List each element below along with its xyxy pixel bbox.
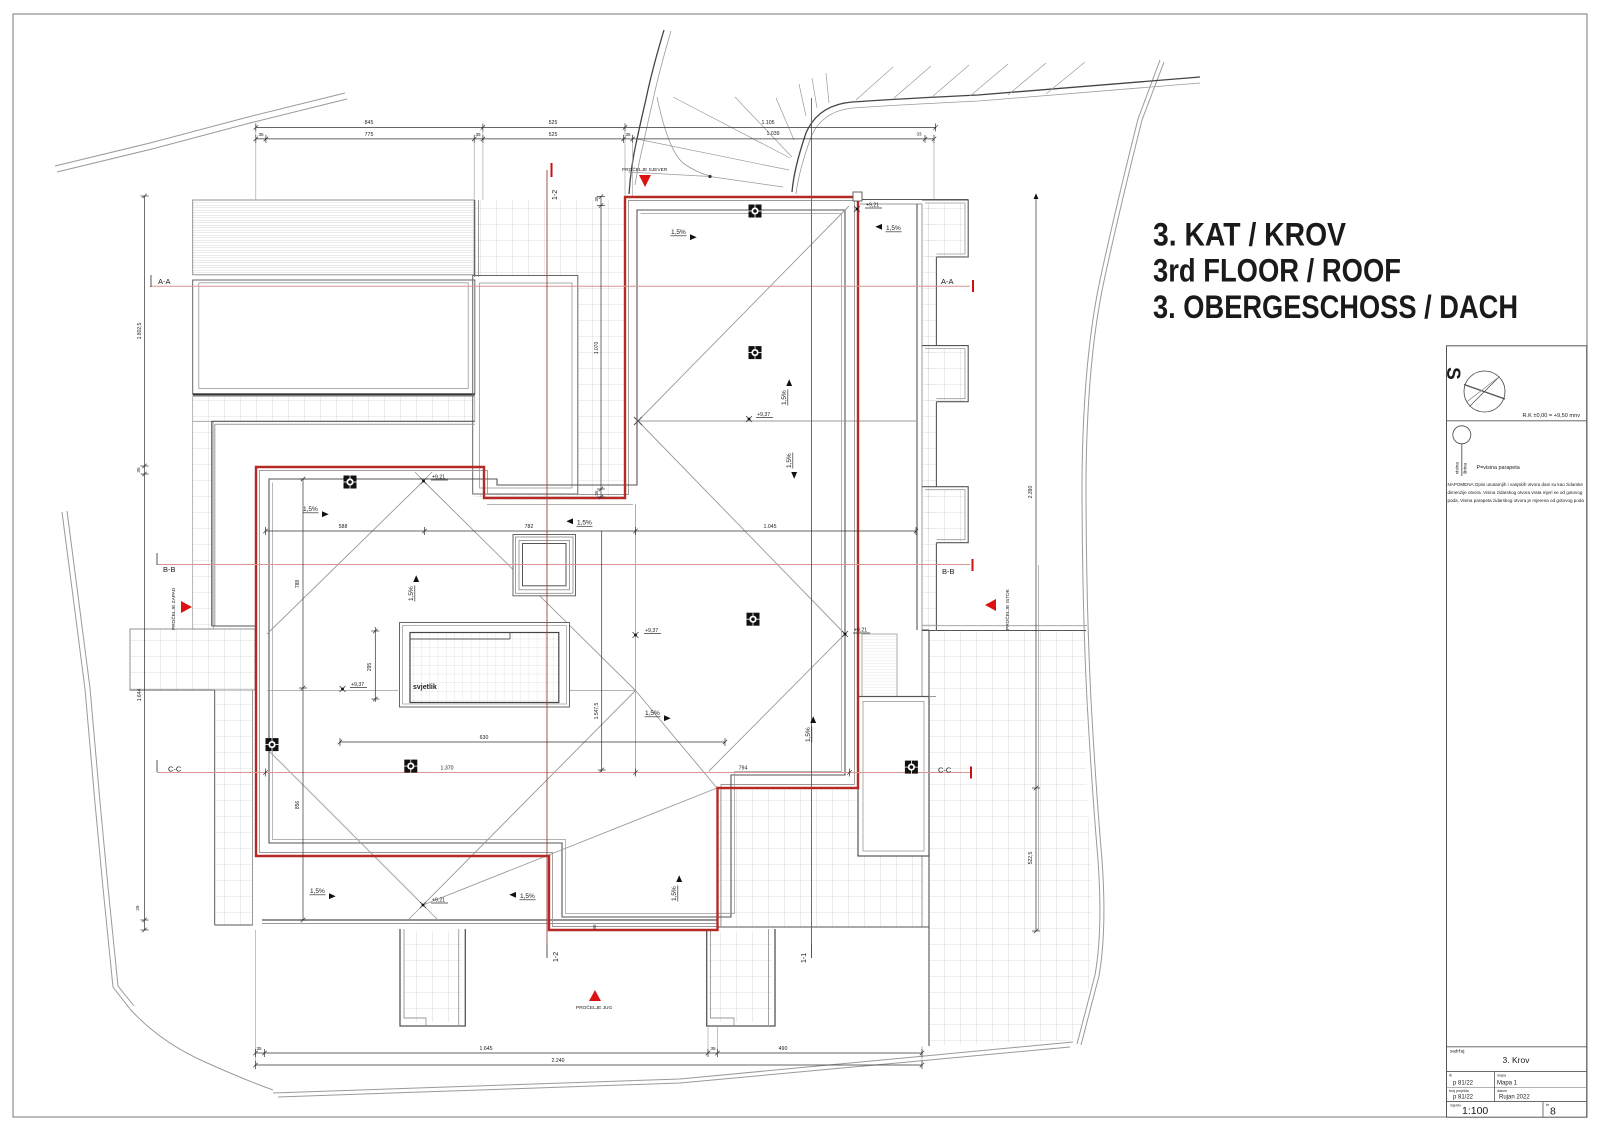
svg-text:782: 782 bbox=[525, 524, 534, 530]
svg-text:35: 35 bbox=[475, 132, 481, 137]
svg-text:A-A: A-A bbox=[941, 277, 954, 286]
svg-text:845: 845 bbox=[365, 120, 374, 126]
svg-text:S: S bbox=[1442, 367, 1463, 380]
svg-text:490: 490 bbox=[779, 1046, 788, 1052]
svg-text:datum: datum bbox=[1497, 1089, 1507, 1093]
svg-text:1,5%: 1,5% bbox=[520, 893, 535, 900]
svg-text:1,5%: 1,5% bbox=[671, 886, 678, 901]
svg-text:588: 588 bbox=[339, 524, 348, 530]
svg-text:525: 525 bbox=[549, 132, 558, 138]
svg-text:+9,21: +9,21 bbox=[432, 898, 445, 904]
svg-text:35: 35 bbox=[258, 132, 264, 137]
svg-text:PROČELJE ZAPAD: PROČELJE ZAPAD bbox=[170, 587, 177, 630]
svg-text:33: 33 bbox=[916, 132, 922, 137]
svg-text:+9,21: +9,21 bbox=[854, 628, 867, 634]
svg-text:+9,37: +9,37 bbox=[757, 412, 770, 418]
svg-text:1:100: 1:100 bbox=[1462, 1105, 1488, 1117]
svg-text:poda. Visina parapeta zidarsko: poda. Visina parapeta zidarskog otvora j… bbox=[1448, 498, 1585, 503]
svg-text:p 81/22: p 81/22 bbox=[1453, 1081, 1474, 1087]
svg-text:1-2: 1-2 bbox=[553, 952, 560, 962]
svg-text:2.390: 2.390 bbox=[1028, 486, 1034, 499]
svg-text:C-C: C-C bbox=[168, 765, 182, 774]
svg-text:3. KAT / KROV: 3. KAT / KROV bbox=[1153, 217, 1347, 253]
svg-text:3. OBERGESCHOSS / DACH: 3. OBERGESCHOSS / DACH bbox=[1153, 289, 1518, 325]
svg-text:B-B: B-B bbox=[163, 565, 176, 574]
svg-text:8: 8 bbox=[1550, 1106, 1556, 1118]
svg-text:NAPOMENA:Opisi unutarnjih i va: NAPOMENA:Opisi unutarnjih i vanjskih otv… bbox=[1448, 482, 1584, 487]
svg-text:35: 35 bbox=[594, 490, 599, 496]
svg-text:tb: tb bbox=[1449, 1074, 1452, 1078]
svg-text:794: 794 bbox=[739, 766, 748, 772]
svg-text:P=visina parapeta: P=visina parapeta bbox=[1477, 465, 1520, 471]
svg-text:1,5%: 1,5% bbox=[805, 727, 812, 742]
svg-text:+9,37: +9,37 bbox=[645, 628, 658, 634]
svg-text:35: 35 bbox=[592, 924, 597, 930]
svg-text:B-B: B-B bbox=[942, 567, 955, 576]
svg-text:Rujan 2022: Rujan 2022 bbox=[1499, 1095, 1530, 1101]
svg-text:sadržaj:: sadržaj: bbox=[1450, 1049, 1465, 1054]
svg-text:visina: visina bbox=[1455, 462, 1460, 474]
svg-text:1.547,5: 1.547,5 bbox=[594, 702, 600, 719]
svg-text:1-2: 1-2 bbox=[552, 190, 559, 200]
svg-text:35: 35 bbox=[594, 196, 599, 202]
svg-text:1,5%: 1,5% bbox=[577, 520, 592, 527]
svg-text:broj projekta: broj projekta bbox=[1449, 1089, 1469, 1093]
svg-text:1.370: 1.370 bbox=[441, 766, 454, 772]
svg-text:2.240: 2.240 bbox=[552, 1058, 565, 1064]
svg-text:1,5%: 1,5% bbox=[781, 390, 788, 405]
svg-text:1,5%: 1,5% bbox=[303, 506, 318, 513]
svg-text:26: 26 bbox=[135, 905, 140, 911]
svg-text:R.K ±0,00 = +9,50 mnv: R.K ±0,00 = +9,50 mnv bbox=[1523, 413, 1581, 419]
svg-text:1.070: 1.070 bbox=[594, 342, 600, 355]
svg-text:1-1: 1-1 bbox=[801, 953, 808, 963]
svg-text:1.802,5: 1.802,5 bbox=[137, 322, 143, 339]
svg-text:1,5%: 1,5% bbox=[786, 453, 793, 468]
svg-text:295: 295 bbox=[367, 663, 373, 672]
svg-text:1,5%: 1,5% bbox=[671, 229, 686, 236]
svg-text:A-A: A-A bbox=[158, 277, 171, 286]
svg-text:dimenzije otvora. Visina zidar: dimenzije otvora. Visina zidarskog otvor… bbox=[1448, 490, 1583, 495]
svg-text:1.105: 1.105 bbox=[762, 120, 775, 126]
svg-text:1,5%: 1,5% bbox=[886, 225, 901, 232]
svg-text:1,5%: 1,5% bbox=[645, 710, 660, 717]
svg-text:856: 856 bbox=[295, 801, 301, 810]
svg-text:PROČELJE JUG: PROČELJE JUG bbox=[576, 1004, 613, 1011]
svg-text:35: 35 bbox=[710, 1046, 716, 1051]
svg-text:788: 788 bbox=[295, 580, 301, 589]
svg-text:522,5: 522,5 bbox=[1028, 852, 1034, 865]
svg-text:3rd FLOOR / ROOF: 3rd FLOOR / ROOF bbox=[1153, 253, 1401, 289]
svg-text:1.645: 1.645 bbox=[480, 1046, 493, 1052]
svg-text:+9,37: +9,37 bbox=[351, 682, 364, 688]
svg-text:+9,21: +9,21 bbox=[866, 203, 879, 209]
svg-text:35: 35 bbox=[136, 467, 141, 473]
svg-text:35: 35 bbox=[625, 132, 631, 137]
svg-text:PROČELJE ISTOK: PROČELJE ISTOK bbox=[1004, 588, 1011, 630]
svg-text:C-C: C-C bbox=[938, 766, 952, 775]
svg-text:širina: širina bbox=[1463, 463, 1468, 474]
svg-text:+9,21: +9,21 bbox=[432, 475, 445, 481]
svg-text:PROČELJE SJEVER: PROČELJE SJEVER bbox=[622, 166, 668, 173]
svg-text:3. Krov: 3. Krov bbox=[1503, 1055, 1531, 1065]
svg-text:1.045: 1.045 bbox=[764, 524, 777, 530]
svg-text:1.644: 1.644 bbox=[137, 689, 143, 702]
svg-text:630: 630 bbox=[480, 735, 489, 741]
svg-text:1.039: 1.039 bbox=[767, 131, 780, 137]
svg-text:35: 35 bbox=[256, 1046, 262, 1051]
svg-text:525: 525 bbox=[549, 120, 558, 126]
svg-text:p 81/22: p 81/22 bbox=[1453, 1095, 1474, 1101]
svg-text:Mapa 1: Mapa 1 bbox=[1497, 1081, 1518, 1087]
svg-text:1,5%: 1,5% bbox=[408, 586, 415, 601]
svg-text:mjerilo: mjerilo bbox=[1450, 1104, 1461, 1108]
svg-text:mapa: mapa bbox=[1497, 1074, 1506, 1078]
svg-text:1,5%: 1,5% bbox=[310, 888, 325, 895]
svg-text:775: 775 bbox=[365, 132, 374, 138]
svg-text:svjetlik: svjetlik bbox=[413, 684, 437, 691]
